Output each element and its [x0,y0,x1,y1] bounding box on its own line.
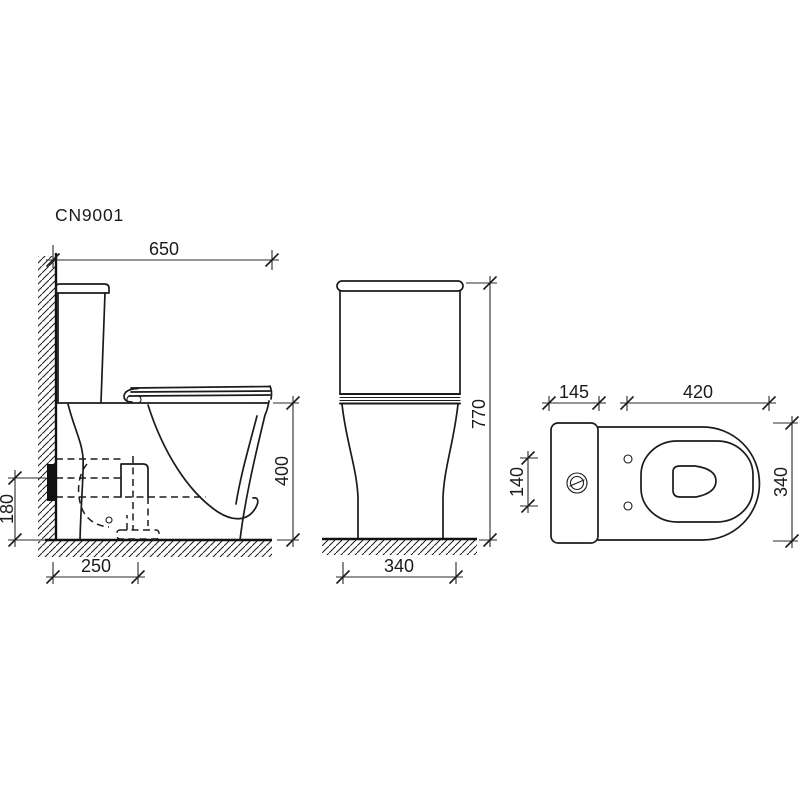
pedestal-right [443,404,458,539]
dim-top-tank-depth: 145 [542,382,606,411]
dim-label: 400 [272,456,292,486]
pedestal-left [342,404,358,539]
seat-opening [641,441,753,522]
wall-outlet-mark [47,464,57,501]
dim-front-height: 770 [466,276,497,547]
dim-top-bowl-length: 420 [620,382,776,411]
trap-foot-dashed [117,530,159,539]
seat-front-edge [270,386,272,399]
trap-pipe-sides-dashed [127,497,148,530]
trap-elbow-solid [121,464,148,497]
technical-drawing: CN9001 [0,0,800,800]
dim-label: 650 [149,239,179,259]
seat-lid-lines [129,387,270,397]
bowl-front-edge [240,401,269,540]
side-view: 650 400 180 250 [0,239,300,584]
floor-hatch [38,541,272,557]
dim-side-rim-height: 400 [272,396,300,547]
floor-hatch-front [322,540,477,555]
seat-band-outer [340,394,460,404]
seat-band-inner [340,398,460,401]
dim-label: 140 [507,467,527,497]
dim-label: 250 [81,556,111,576]
dim-label: 145 [559,382,589,402]
model-number: CN9001 [55,205,124,225]
dim-label: 420 [683,382,713,402]
fixing-hole [106,517,112,523]
cistern-top [551,423,598,543]
cistern-body-front [340,291,460,394]
flush-button-divider [570,480,584,486]
dim-label: 340 [384,556,414,576]
front-view: 770 340 [322,276,497,584]
hinge-hole-bottom [624,502,632,510]
dim-top-width: 340 [771,416,799,548]
seat-outline-top [598,427,759,540]
top-view: 145 420 140 340 [507,382,799,548]
hinge-hole-top [624,455,632,463]
cistern-lid-front [337,281,463,291]
bowl-inner-sweep [148,405,258,519]
cistern-body-side [58,293,105,402]
dim-label: 180 [0,494,17,524]
bowl-back-edge [68,404,83,540]
cistern-lid-side [56,284,109,293]
drawing-page: CN9001 [0,0,800,800]
dim-label: 340 [771,467,791,497]
dim-label: 770 [469,399,489,429]
dim-side-outlet-offset: 250 [46,556,145,584]
dim-front-base-width: 340 [336,556,463,584]
dim-side-depth: 650 [46,239,279,270]
water-area [673,466,716,497]
dim-top-tank-side: 140 [507,451,538,513]
